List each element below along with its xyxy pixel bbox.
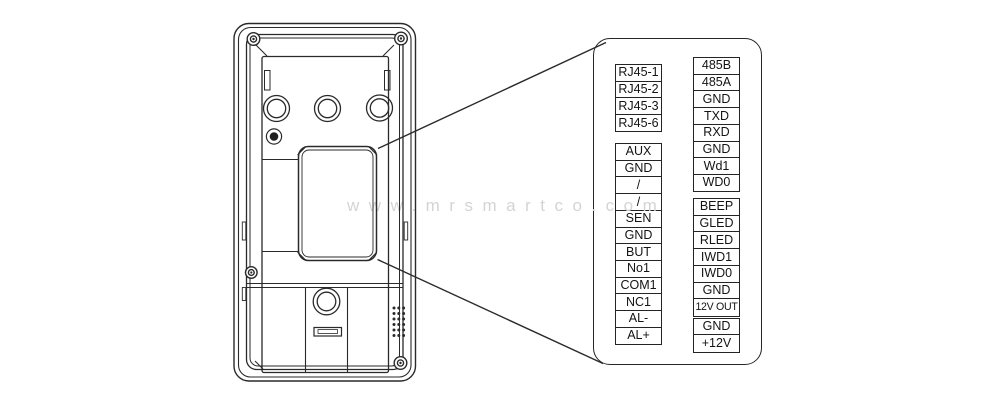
latch-slot [314, 328, 342, 337]
pin-label-cell: AL+ [615, 327, 662, 345]
pin-label-cell: GND [615, 160, 662, 178]
wire-hole-right [367, 95, 393, 121]
callout-line-top [378, 43, 606, 149]
pin-label-cell: / [615, 176, 662, 194]
pin-label-cell: GLED [693, 215, 740, 233]
mount-notch-right [385, 71, 391, 91]
panel-seam-lines [247, 160, 403, 373]
pin-label-cell: COM1 [615, 277, 662, 295]
pin-label-cell: 12V OUT [693, 298, 740, 316]
pin-label-cell: GND [693, 90, 740, 108]
pin-label-cell: TXD [693, 107, 740, 125]
pin-label-cell: 485B [693, 57, 740, 75]
screw-icon-top-left [247, 33, 260, 46]
screw-icon-left-mid [246, 267, 258, 279]
pin-label-cell: GND [693, 282, 740, 300]
pin-label-cell: IWD1 [693, 248, 740, 266]
tamper-hole [266, 129, 281, 144]
wire-hole-bottom [313, 288, 340, 315]
pin-group-main: AUXGND//SENGNDBUTNo1COM1NC1AL-AL+ [615, 143, 662, 345]
pin-label-cell: AUX [615, 143, 662, 161]
pin-label-cell: NC1 [615, 293, 662, 311]
pin-label-cell: AL- [615, 310, 662, 328]
pin-label-cell: RJ45-3 [615, 97, 662, 115]
pin-label-cell: GND [693, 141, 740, 159]
pin-label-cell: RJ45-6 [615, 114, 662, 132]
pin-label-cell: 485A [693, 74, 740, 92]
pin-label-cell: RXD [693, 124, 740, 142]
pin-group-rj45: RJ45-1RJ45-2RJ45-3RJ45-6 [615, 64, 662, 132]
pin-group-comm: 485B485AGNDTXDRXDGNDWd1WD0 [693, 57, 740, 192]
mount-notch-left [265, 71, 271, 91]
pin-label-cell: GND [693, 318, 740, 336]
pin-label-cell: RJ45-1 [615, 64, 662, 82]
pin-group-io: BEEPGLEDRLEDIWD1IWD0GND12V OUT [693, 198, 740, 317]
rim-slots [242, 222, 407, 301]
pin-label-cell: +12V [693, 334, 740, 352]
pin-label-cell: RLED [693, 231, 740, 249]
speaker-holes [393, 307, 406, 338]
pin-label-cell: RJ45-2 [615, 81, 662, 99]
pin-label-cell: GND [615, 227, 662, 245]
wire-hole-left [264, 96, 290, 122]
wire-hole-middle [315, 96, 341, 122]
pin-label-cell: Wd1 [693, 157, 740, 175]
callout-line-bottom [378, 260, 604, 364]
wiring-diagram: RJ45-1RJ45-2RJ45-3RJ45-6 AUXGND//SENGNDB… [0, 0, 999, 408]
pin-label-cell: BUT [615, 243, 662, 261]
watermark: www.mrsmartco.com [347, 196, 666, 216]
pin-label-cell: No1 [615, 260, 662, 278]
pin-group-power: GND+12V [693, 318, 740, 353]
screw-icon-top-right [395, 32, 408, 45]
pin-label-cell: IWD0 [693, 265, 740, 283]
screw-icon-bottom-right [394, 357, 407, 370]
pin-label-cell: WD0 [693, 174, 740, 192]
pin-label-cell: BEEP [693, 198, 740, 216]
